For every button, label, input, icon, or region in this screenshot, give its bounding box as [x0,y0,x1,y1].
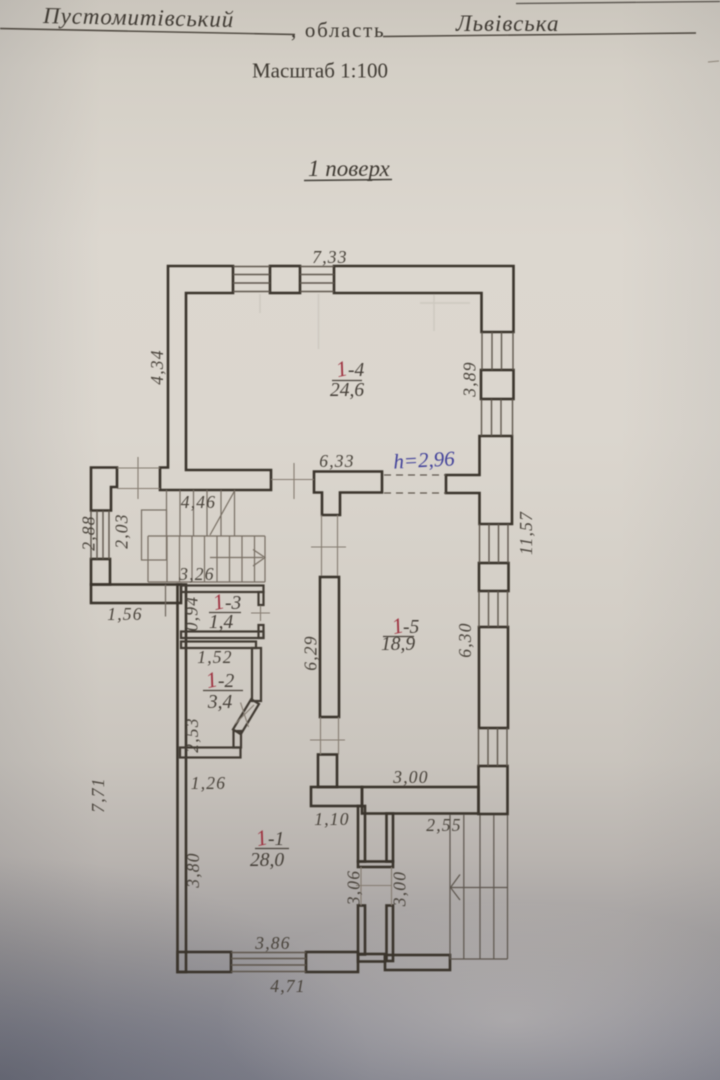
svg-text:6,33: 6,33 [319,451,354,471]
svg-text:2,03: 2,03 [112,513,132,548]
svg-text:-2: -2 [218,671,234,692]
svg-text:, область: , область [291,18,385,42]
svg-text:6,29: 6,29 [301,635,321,670]
svg-text:3,86: 3,86 [254,933,290,953]
svg-text:3,06: 3,06 [344,870,364,906]
svg-text:2,53: 2,53 [182,717,202,752]
svg-text:Львівська: Львівська [455,11,559,36]
svg-text:1,4: 1,4 [209,612,234,633]
svg-text:24,6: 24,6 [330,380,364,401]
svg-text:7,33: 7,33 [312,247,347,267]
svg-text:1,26: 1,26 [191,773,226,793]
svg-text:28,0: 28,0 [250,850,284,871]
svg-text:-1: -1 [268,829,284,850]
svg-text:4,71: 4,71 [270,976,305,996]
svg-text:3,00: 3,00 [390,871,410,907]
svg-text:1,52: 1,52 [197,647,232,667]
svg-text:11,57: 11,57 [516,511,536,555]
svg-text:-4: -4 [348,360,364,381]
svg-text:3,80: 3,80 [183,852,203,888]
svg-text:Пустомитівський: Пустомитівський [42,3,235,32]
svg-text:3,00: 3,00 [392,767,428,787]
svg-text:18,9: 18,9 [381,634,415,655]
svg-text:4,46: 4,46 [181,492,216,512]
svg-text:h=2,96: h=2,96 [393,446,456,473]
svg-text:0,94: 0,94 [182,596,202,631]
svg-text:1,10: 1,10 [314,809,349,829]
svg-text:2,55: 2,55 [426,815,461,835]
svg-text:1,56: 1,56 [107,604,142,624]
svg-text:3,4: 3,4 [207,692,233,713]
svg-text:6,30: 6,30 [455,622,475,657]
svg-text:Масштаб 1:100: Масштаб 1:100 [252,59,388,83]
svg-text:-3: -3 [225,593,241,614]
svg-text:2,88: 2,88 [79,515,99,550]
svg-text:1 поверх: 1 поверх [308,156,390,181]
svg-text:3,26: 3,26 [178,564,214,584]
svg-text:4,34: 4,34 [147,349,167,384]
svg-text:7,71: 7,71 [88,777,108,812]
svg-text:3,89: 3,89 [460,361,480,397]
